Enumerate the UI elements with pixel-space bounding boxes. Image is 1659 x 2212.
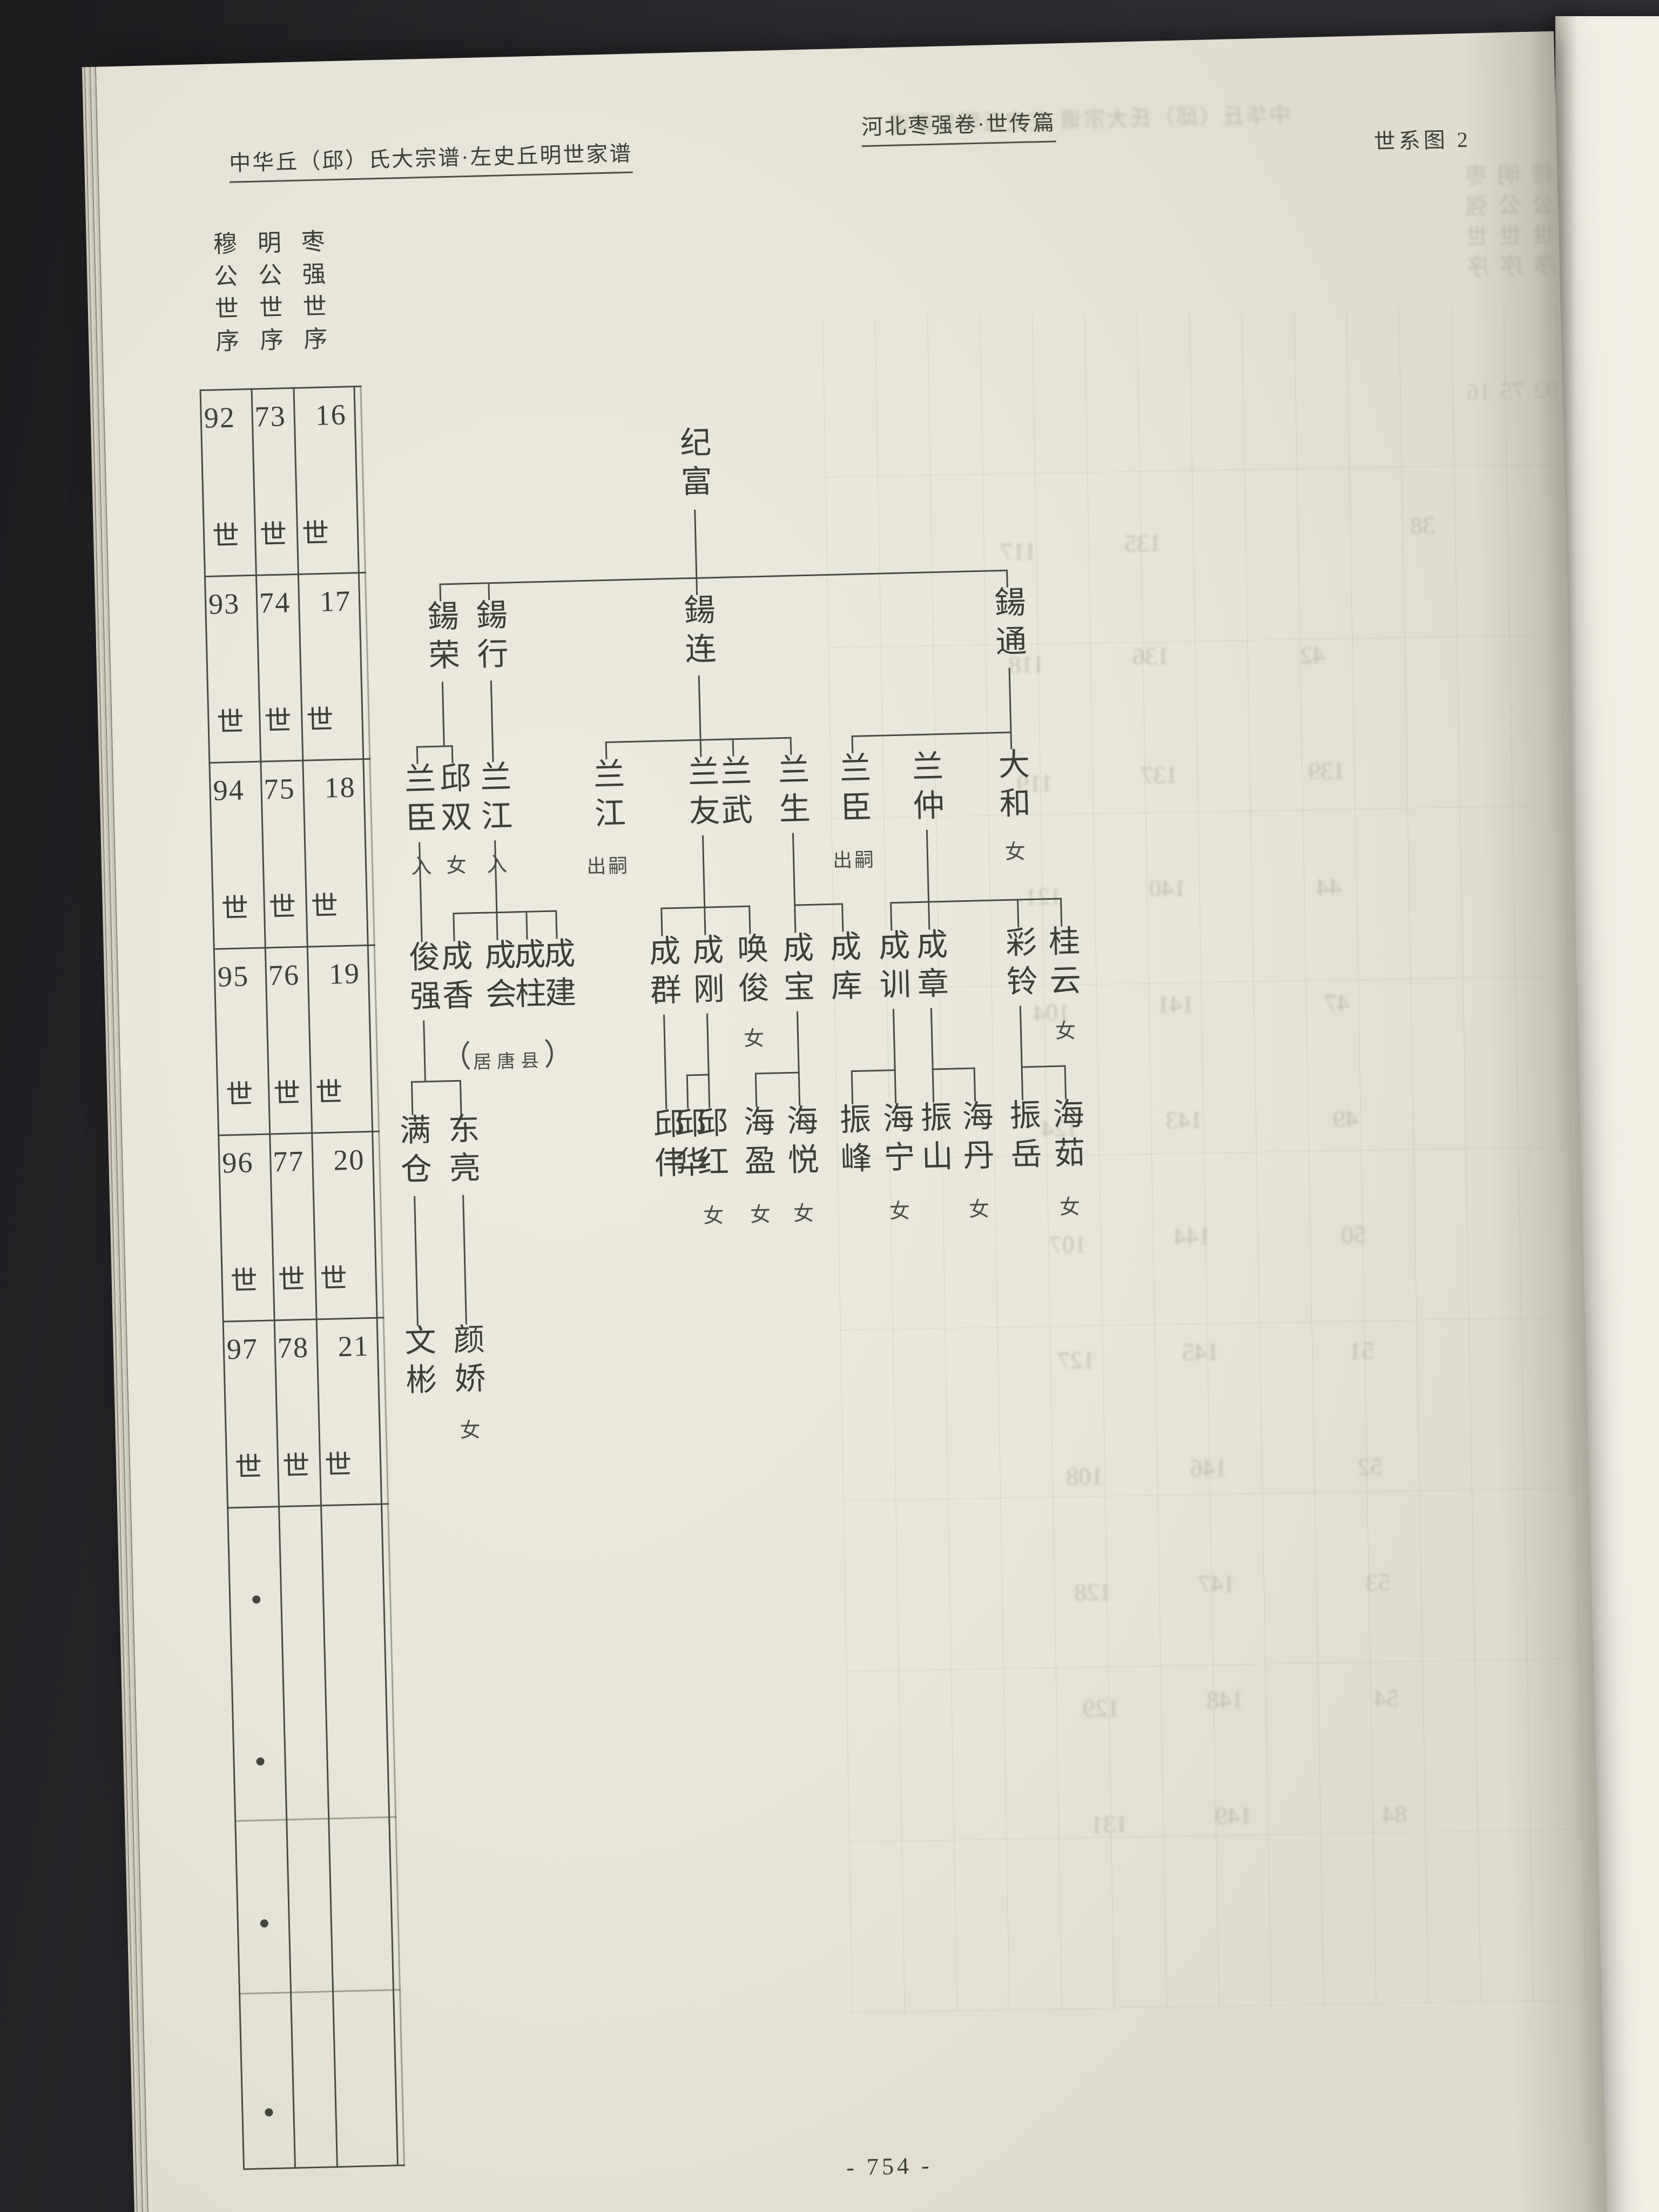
generation-suffix: 世: [311, 884, 339, 923]
person-node: 兰武: [717, 754, 750, 833]
connector-line-vertical: [451, 747, 454, 763]
connector-line-vertical: [414, 1196, 419, 1326]
table-column-header: 明公世序: [249, 230, 287, 360]
connector-line-vertical: [694, 510, 698, 595]
generation-suffix: 世: [212, 514, 240, 554]
person-node: 振岳: [1006, 1098, 1040, 1177]
connector-line-vertical: [790, 739, 792, 755]
continuation-dot: [256, 1757, 264, 1765]
person-node: 大和: [995, 747, 1028, 826]
person-node: 鍚通: [991, 585, 1024, 664]
connector-line-horizontal: [605, 737, 792, 743]
generation-suffix: 世: [282, 1444, 310, 1483]
generation-number: 77: [273, 1144, 305, 1178]
table-grid-line: [227, 1503, 389, 1508]
book-page: 中华丘（邱）氏大宗谱·左史丘明世家谱 枣强世序 明公世序 穆公世序 135117…: [96, 31, 1610, 2212]
annotation-daughter: 女: [786, 1202, 817, 1226]
generation-table: 穆公世序明公世序枣强世序927316世世世937417世世世947518世世世9…: [0, 0, 1658, 38]
connector-line-vertical: [453, 914, 455, 941]
generation-suffix: 世: [217, 700, 245, 739]
page-content: 中华丘（邱）氏大宗谱·左史丘明世家谱 枣强世序 明公世序 穆公世序 135117…: [0, 0, 1659, 2212]
generation-suffix: 世: [278, 1258, 306, 1297]
annotation-daughter: 女: [439, 854, 469, 878]
person-node: 成香: [438, 939, 471, 1017]
connector-line-vertical: [525, 913, 528, 940]
generation-suffix: 世: [268, 885, 296, 925]
person-node: 振山: [917, 1101, 950, 1179]
person-node: 海茹: [1049, 1097, 1083, 1176]
table-grid-line: [208, 758, 370, 764]
bleed-through-number: 16: [1466, 377, 1492, 406]
page-number: - 754 -: [846, 2152, 933, 2181]
person-node: 俊强: [406, 940, 439, 1019]
bleed-through-column-header: 穆公世序: [1528, 162, 1563, 284]
person-node: 纪富: [676, 426, 710, 504]
person-node: 海盈: [740, 1105, 773, 1183]
table-grid-line: [218, 1130, 380, 1136]
bleed-through-number: 42: [1299, 640, 1325, 669]
bleed-through-number: 54: [1374, 1684, 1399, 1713]
table-grid-line: [204, 572, 366, 577]
chart-label-number: 2: [1456, 127, 1471, 152]
paren-open: （: [441, 1032, 472, 1076]
connector-line-horizontal: [755, 1071, 800, 1074]
bleed-through-number: 53: [1365, 1568, 1391, 1597]
bleed-through-number: 92: [1533, 375, 1559, 404]
bleed-through-number: 144: [1174, 1221, 1211, 1251]
connector-line-vertical: [555, 912, 557, 939]
bleed-through-number: 52: [1357, 1452, 1382, 1481]
connector-line-horizontal: [686, 1074, 710, 1076]
connector-line-vertical: [755, 1074, 757, 1107]
table-grid-line: [222, 1317, 385, 1322]
bleed-through-number: 128: [1074, 1577, 1112, 1607]
generation-number: 94: [213, 773, 245, 807]
person-node: 海宁: [879, 1101, 913, 1179]
connector-line-vertical: [663, 1015, 667, 1109]
bleed-through-number: 51: [1349, 1336, 1374, 1365]
generation-number: 16: [315, 398, 347, 432]
person-node: 文彬: [401, 1324, 435, 1402]
person-node: 兰仲: [908, 750, 942, 828]
bleed-through-number: 140: [1149, 873, 1186, 903]
generation-number: 93: [208, 587, 240, 621]
table-grid-line: [234, 1816, 396, 1822]
connector-line-horizontal: [453, 910, 557, 914]
generation-number: 19: [328, 956, 360, 990]
bleed-through-number: 127: [1057, 1345, 1095, 1375]
connector-line-vertical: [439, 585, 441, 601]
person-node: 颜娇: [450, 1323, 483, 1401]
volume-title: 河北枣强卷·世传篇: [861, 105, 1056, 147]
person-node: 兰臣: [401, 762, 434, 840]
annotation-daughter: 女: [453, 1419, 483, 1443]
person-node: 海丹: [959, 1100, 992, 1178]
table-grid-line: [360, 386, 405, 2164]
annotation-daughter: 女: [1053, 1196, 1083, 1220]
bleed-through-column-header: 枣强世序: [1461, 164, 1496, 285]
continuation-dot: [260, 1919, 268, 1927]
table-grid-line: [353, 386, 399, 2164]
bleed-through-number: 44: [1316, 872, 1341, 901]
annotation-daughter: 女: [743, 1203, 773, 1228]
bleed-through-number: 84: [1382, 1799, 1407, 1829]
generation-suffix: 世: [320, 1257, 348, 1296]
person-node: 兰生: [774, 753, 808, 831]
generation-number: 97: [226, 1332, 258, 1366]
generation-number: 92: [204, 401, 235, 435]
person-node: 兰臣: [836, 751, 869, 829]
table-column-header: 枣强世序: [293, 228, 331, 359]
annotation-daughter: 女: [998, 840, 1028, 865]
table-grid-line: [199, 386, 361, 391]
annotation-daughter: 女: [882, 1199, 913, 1224]
book-title: 中华丘（邱）氏大宗谱·左史丘明世家谱: [228, 136, 633, 183]
generation-suffix: 世: [315, 1070, 343, 1110]
bleed-through-number: 139: [1308, 756, 1346, 786]
person-node: 唤俊: [733, 932, 767, 1010]
generation-number: 21: [338, 1329, 369, 1363]
bleed-through-column-header: 明公世序: [1494, 163, 1530, 284]
residence-note: 居唐县: [473, 1046, 544, 1074]
connector-line-vertical: [698, 676, 702, 757]
bleed-through-number: 146: [1190, 1453, 1228, 1482]
person-node: 鍚行: [473, 598, 506, 677]
person-node: 兰友: [684, 755, 718, 833]
generation-number: 76: [268, 958, 300, 992]
bleed-through-numbers: 1351173813611842137119139140121441414710…: [0, 0, 1658, 38]
person-node: 邱双: [436, 761, 469, 839]
generation-number: 74: [259, 585, 291, 619]
connector-line-vertical: [442, 682, 445, 747]
person-node: 成群: [645, 934, 679, 1013]
bleed-through-number: 47: [1324, 988, 1350, 1017]
generation-number: 95: [217, 959, 249, 993]
generation-number: 17: [319, 584, 351, 618]
connector-line-vertical: [686, 1076, 689, 1109]
table-grid-line: [243, 2164, 405, 2170]
connector-line-vertical: [411, 1083, 413, 1115]
continuation-dot: [252, 1595, 260, 1603]
generation-suffix: 世: [306, 698, 334, 737]
generation-suffix: 世: [221, 886, 249, 926]
annotation-adopted: 入: [404, 855, 434, 879]
book-photo: 中华丘（邱）氏大宗谱·左史丘明世家谱 枣强世序 明公世序 穆公世序 135117…: [0, 0, 1659, 2212]
annotation-daughter: 女: [696, 1204, 726, 1229]
connector-line-vertical: [732, 740, 734, 756]
generation-number: 75: [264, 772, 295, 806]
bleed-through-number: 143: [1165, 1105, 1203, 1135]
connector-line-vertical: [706, 1014, 710, 1108]
person-node: 海悦: [783, 1104, 817, 1182]
generation-suffix: 世: [273, 1071, 301, 1111]
connector-line-vertical: [488, 584, 490, 600]
person-node: 彩铃: [1002, 926, 1035, 1004]
bleed-through-number: 131: [1090, 1809, 1128, 1839]
person-node: 满仓: [396, 1113, 429, 1191]
person-node: 东亮: [444, 1112, 478, 1190]
genealogy-tree: 纪富鍚荣鍚行鍚连鍚通兰臣入邱双女兰江入兰江出嗣兰友兰武兰生兰臣出嗣兰仲大和女俊强…: [0, 0, 1658, 38]
person-node: 振峰: [836, 1102, 869, 1181]
bleed-through-number: 117: [1000, 536, 1037, 566]
connector-line-vertical: [702, 835, 706, 935]
annotation-daughter: 女: [737, 1027, 767, 1051]
table-grid-line: [213, 945, 375, 950]
bleed-through-number: 129: [1082, 1693, 1120, 1723]
bleed-through-number: 148: [1206, 1685, 1244, 1715]
chart-label: 世系图 2: [1373, 122, 1471, 156]
person-node: 鍚荣: [424, 599, 457, 678]
connector-line-vertical: [490, 680, 494, 762]
bleed-through-number: 147: [1198, 1569, 1236, 1599]
continuation-dot: [265, 2108, 273, 2116]
generation-number: 78: [277, 1331, 309, 1365]
bleed-through-number: 135: [1124, 528, 1162, 558]
bleed-through-number: 149: [1215, 1800, 1252, 1830]
bleed-through-number: 75: [1500, 376, 1525, 405]
person-node: 成训: [875, 929, 908, 1007]
person-node: 成刚: [689, 933, 722, 1011]
generation-suffix: 世: [230, 1259, 258, 1298]
annotation-chusi: 出嗣: [832, 844, 876, 873]
annotation-daughter: 女: [962, 1198, 992, 1222]
generation-number: 18: [324, 770, 356, 804]
generation-suffix: 世: [264, 699, 292, 738]
person-node: 兰江: [590, 757, 623, 835]
generation-suffix: 世: [234, 1445, 262, 1485]
connector-line-vertical: [660, 909, 663, 936]
bleed-through-number: 136: [1132, 641, 1170, 671]
connector-line-vertical: [748, 907, 751, 934]
person-node: 成宝: [779, 931, 812, 1009]
generation-suffix: 世: [301, 511, 329, 551]
person-node: 成库: [826, 930, 860, 1008]
bleed-through-number: 50: [1341, 1220, 1366, 1249]
generation-suffix: 世: [225, 1073, 253, 1112]
generation-number: 96: [222, 1145, 254, 1179]
bleed-through-number: 107: [1049, 1230, 1087, 1259]
bleed-through-number: 141: [1157, 989, 1195, 1019]
person-node: 成章: [913, 928, 946, 1006]
bleed-through-number: 38: [1410, 510, 1435, 539]
table-column-header: 穆公世序: [205, 231, 242, 361]
annotation-chusi: 出嗣: [586, 850, 630, 879]
person-node: 成建: [540, 937, 574, 1015]
bleed-through-number: 121: [1024, 881, 1062, 911]
person-node: 鍚连: [680, 593, 714, 671]
bleed-through-number: 49: [1332, 1104, 1358, 1133]
connector-line-vertical: [416, 748, 419, 764]
person-node: 邱红: [693, 1106, 726, 1184]
connector-line-vertical: [792, 833, 797, 933]
table-grid-line: [239, 1989, 401, 1994]
chart-label-text: 世系图: [1373, 128, 1448, 154]
annotation-adopted: 入: [480, 853, 510, 877]
connector-line-vertical: [797, 1011, 800, 1105]
generation-number: 20: [333, 1143, 365, 1177]
generation-suffix: 世: [259, 512, 287, 552]
bleed-through-number: 108: [1065, 1461, 1103, 1491]
paren-close: ）: [543, 1030, 575, 1074]
connector-line-vertical: [460, 1082, 462, 1114]
bleed-through-number: 145: [1182, 1337, 1219, 1367]
bleed-through-number: 137: [1141, 760, 1178, 790]
connector-line-horizontal: [411, 1080, 461, 1083]
generation-suffix: 世: [324, 1443, 352, 1482]
connector-line-vertical: [605, 743, 608, 759]
connector-line-vertical: [462, 1195, 467, 1325]
generation-number: 73: [254, 399, 286, 433]
annotation-daughter: 女: [1048, 1020, 1078, 1044]
person-node: 桂云: [1045, 925, 1078, 1003]
connector-line-vertical: [423, 1020, 426, 1082]
person-node: 兰江: [476, 760, 510, 838]
connector-line-horizontal: [416, 745, 453, 748]
